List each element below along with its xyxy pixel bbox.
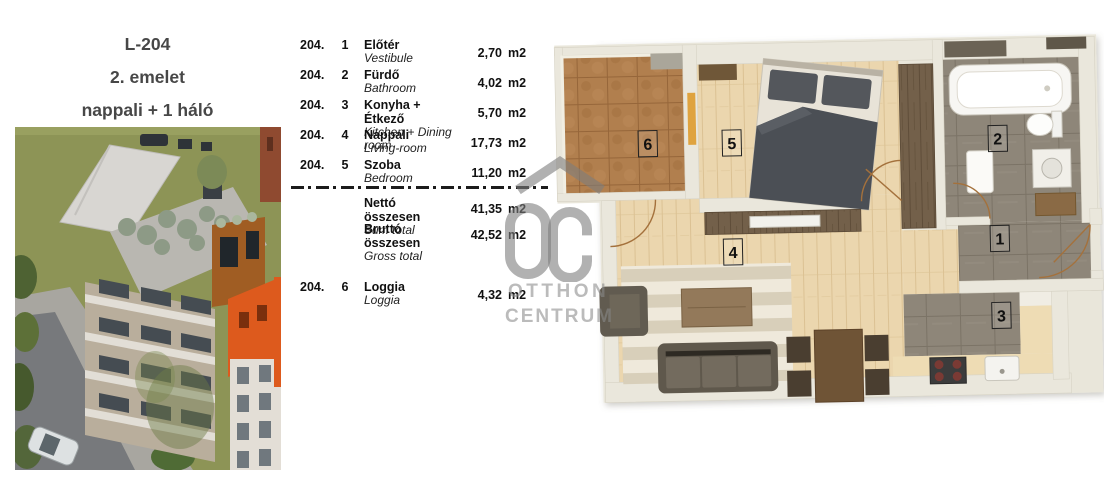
tv-cabinet <box>705 209 861 234</box>
wardrobe <box>899 64 936 229</box>
armchair <box>599 286 648 337</box>
room-area: 17,73 <box>454 136 502 150</box>
table-row: 204. 2 FürdőBathroom 4,02 m2 <box>296 68 536 98</box>
area-unit: m2 <box>502 288 536 302</box>
row-number: 4 <box>334 128 356 142</box>
room-area: 2,70 <box>454 46 502 60</box>
room-name-en: Bathroom <box>364 82 454 95</box>
svg-text:1: 1 <box>995 231 1004 248</box>
row-lot: 204. <box>296 280 334 294</box>
row-number: 5 <box>334 158 356 172</box>
room-name-hu: Nappali <box>364 128 454 142</box>
table-row-loggia: 204. 6 LoggiaLoggia 4,32 m2 <box>296 280 536 310</box>
building-photo-render <box>15 127 281 470</box>
row-lot: 204. <box>296 128 334 142</box>
terrace-tree <box>197 155 227 189</box>
building-photo <box>15 127 281 470</box>
bed <box>749 59 883 210</box>
bath-accent-tile <box>944 40 1006 57</box>
total-label-en: Gross total <box>364 250 454 263</box>
room-name-hu: Konyha + Étkező <box>364 98 454 126</box>
room-label-kitchen: 3 <box>992 302 1012 328</box>
room-name-en: Vestibule <box>364 52 454 65</box>
table-divider <box>291 186 548 189</box>
area-unit: m2 <box>502 76 536 90</box>
room-area: 11,20 <box>454 166 502 180</box>
area-unit: m2 <box>502 202 536 216</box>
room-area: 4,32 <box>454 288 502 302</box>
table-row: 204. 4 NappaliLiving-room 17,73 m2 <box>296 128 536 158</box>
row-lot: 204. <box>296 98 334 112</box>
bath-cabinet <box>1035 193 1075 216</box>
room-name-hu: Fürdő <box>364 68 454 82</box>
sofa <box>657 341 778 394</box>
area-unit: m2 <box>502 228 536 242</box>
room-loggia-floor <box>560 53 685 194</box>
loggia-door <box>687 93 696 145</box>
row-number: 1 <box>334 38 356 52</box>
svg-text:2: 2 <box>993 131 1002 148</box>
table-row: 204. 5 SzobaBedroom 11,20 m2 <box>296 158 536 188</box>
room-area: 5,70 <box>454 106 502 120</box>
floor-plan: 6 5 2 4 1 <box>550 18 1104 430</box>
room-name-en: Loggia <box>364 294 454 307</box>
room-name-en: Living-room <box>364 142 454 155</box>
floor-plan-sheet: L-204 2. emelet nappali + 1 háló <box>0 0 1104 500</box>
coffee-table <box>681 288 752 327</box>
total-area: 41,35 <box>454 202 502 216</box>
row-number: 3 <box>334 98 356 112</box>
bedroom-closet <box>699 64 737 81</box>
row-lot: 204. <box>296 38 334 52</box>
room-vestibule-floor <box>958 220 1091 281</box>
svg-text:6: 6 <box>643 137 652 154</box>
stove <box>930 357 967 384</box>
table-row: 204. 1 ElőtérVestibule 2,70 m2 <box>296 38 536 68</box>
title-block: L-204 2. emelet nappali + 1 háló <box>5 28 290 127</box>
total-area: 42,52 <box>454 228 502 242</box>
total-label-hu: Bruttó összesen <box>364 222 454 250</box>
unit-id: L-204 <box>5 28 290 61</box>
area-unit: m2 <box>502 106 536 120</box>
washing-machine <box>1032 149 1071 188</box>
svg-text:4: 4 <box>728 245 737 262</box>
room-label-loggia: 6 <box>638 131 658 157</box>
unit-layout: nappali + 1 háló <box>5 94 290 127</box>
kitchen-sink <box>985 356 1019 381</box>
room-label-vestibule: 1 <box>990 225 1010 251</box>
area-unit: m2 <box>502 136 536 150</box>
room-label-bedroom: 5 <box>722 130 742 156</box>
row-number: 6 <box>334 280 356 294</box>
room-area: 4,02 <box>454 76 502 90</box>
total-row-gross: Bruttó összesenGross total 42,52 m2 <box>296 222 536 248</box>
room-name-hu: Loggia <box>364 280 454 294</box>
hall-floor <box>902 229 959 294</box>
unit-floor: 2. emelet <box>5 61 290 94</box>
svg-text:3: 3 <box>997 308 1006 325</box>
floor-plan-drawing: 6 5 2 4 1 <box>550 18 1104 430</box>
row-lot: 204. <box>296 68 334 82</box>
row-lot: 204. <box>296 158 334 172</box>
kitchen-pantry <box>1020 305 1053 354</box>
loggia-beam <box>650 53 682 70</box>
total-label-hu: Nettó összesen <box>364 196 454 224</box>
area-unit: m2 <box>502 46 536 60</box>
bathtub <box>949 63 1072 116</box>
svg-text:5: 5 <box>727 136 736 153</box>
room-name-hu: Szoba <box>364 158 454 172</box>
room-table: 204. 1 ElőtérVestibule 2,70 m2 204. 2 Fü… <box>296 38 536 310</box>
kitchen-closet <box>1019 291 1051 306</box>
room-label-bathroom: 2 <box>988 125 1008 151</box>
table-row: 204. 3 Konyha + ÉtkezőKitchen + Dining r… <box>296 98 536 128</box>
room-name-hu: Előtér <box>364 38 454 52</box>
area-unit: m2 <box>502 166 536 180</box>
room-label-living: 4 <box>723 239 743 265</box>
bath-accent-tile2 <box>1046 37 1086 50</box>
row-number: 2 <box>334 68 356 82</box>
total-row-net: Nettó összesenSum total 41,35 m2 <box>296 196 536 222</box>
room-name-en: Bedroom <box>364 172 454 185</box>
